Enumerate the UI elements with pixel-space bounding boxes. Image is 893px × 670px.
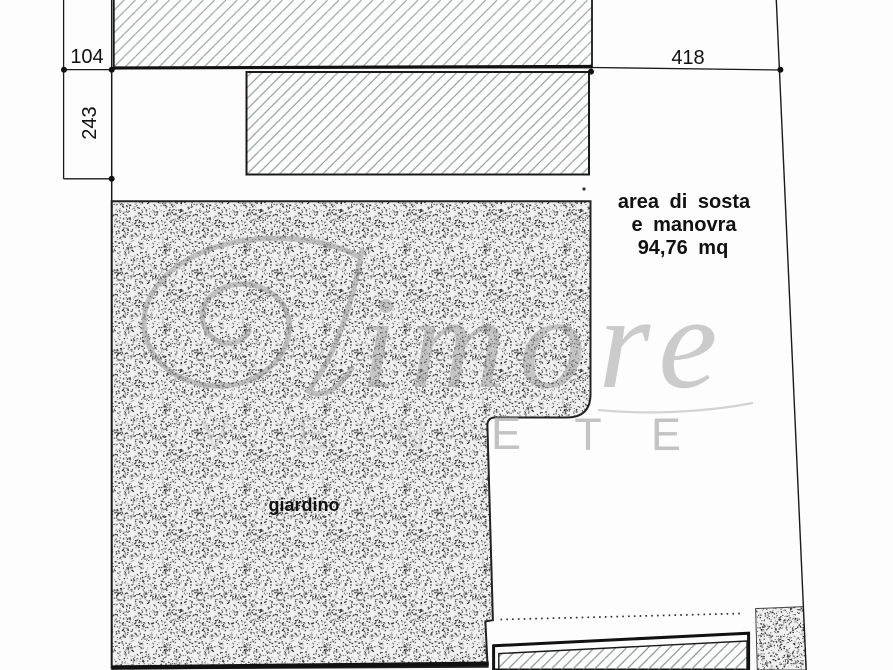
svg-text:T: T	[574, 409, 602, 460]
svg-text:V: V	[200, 408, 230, 459]
svg-text:giardino: giardino	[269, 495, 340, 515]
svg-text:imore: imore	[360, 268, 730, 416]
svg-text:E: E	[651, 409, 681, 460]
svg-text:N: N	[394, 408, 427, 459]
svg-text:243: 243	[79, 106, 101, 139]
svg-text:104: 104	[70, 46, 103, 68]
svg-text:e manovra: e manovra	[631, 214, 737, 236]
svg-text:area di sosta: area di sosta	[618, 191, 751, 213]
svg-text:418: 418	[671, 47, 704, 69]
svg-text:E: E	[491, 408, 521, 459]
svg-text:94,76 mq: 94,76 mq	[638, 237, 729, 259]
svg-text:E: E	[297, 408, 327, 459]
